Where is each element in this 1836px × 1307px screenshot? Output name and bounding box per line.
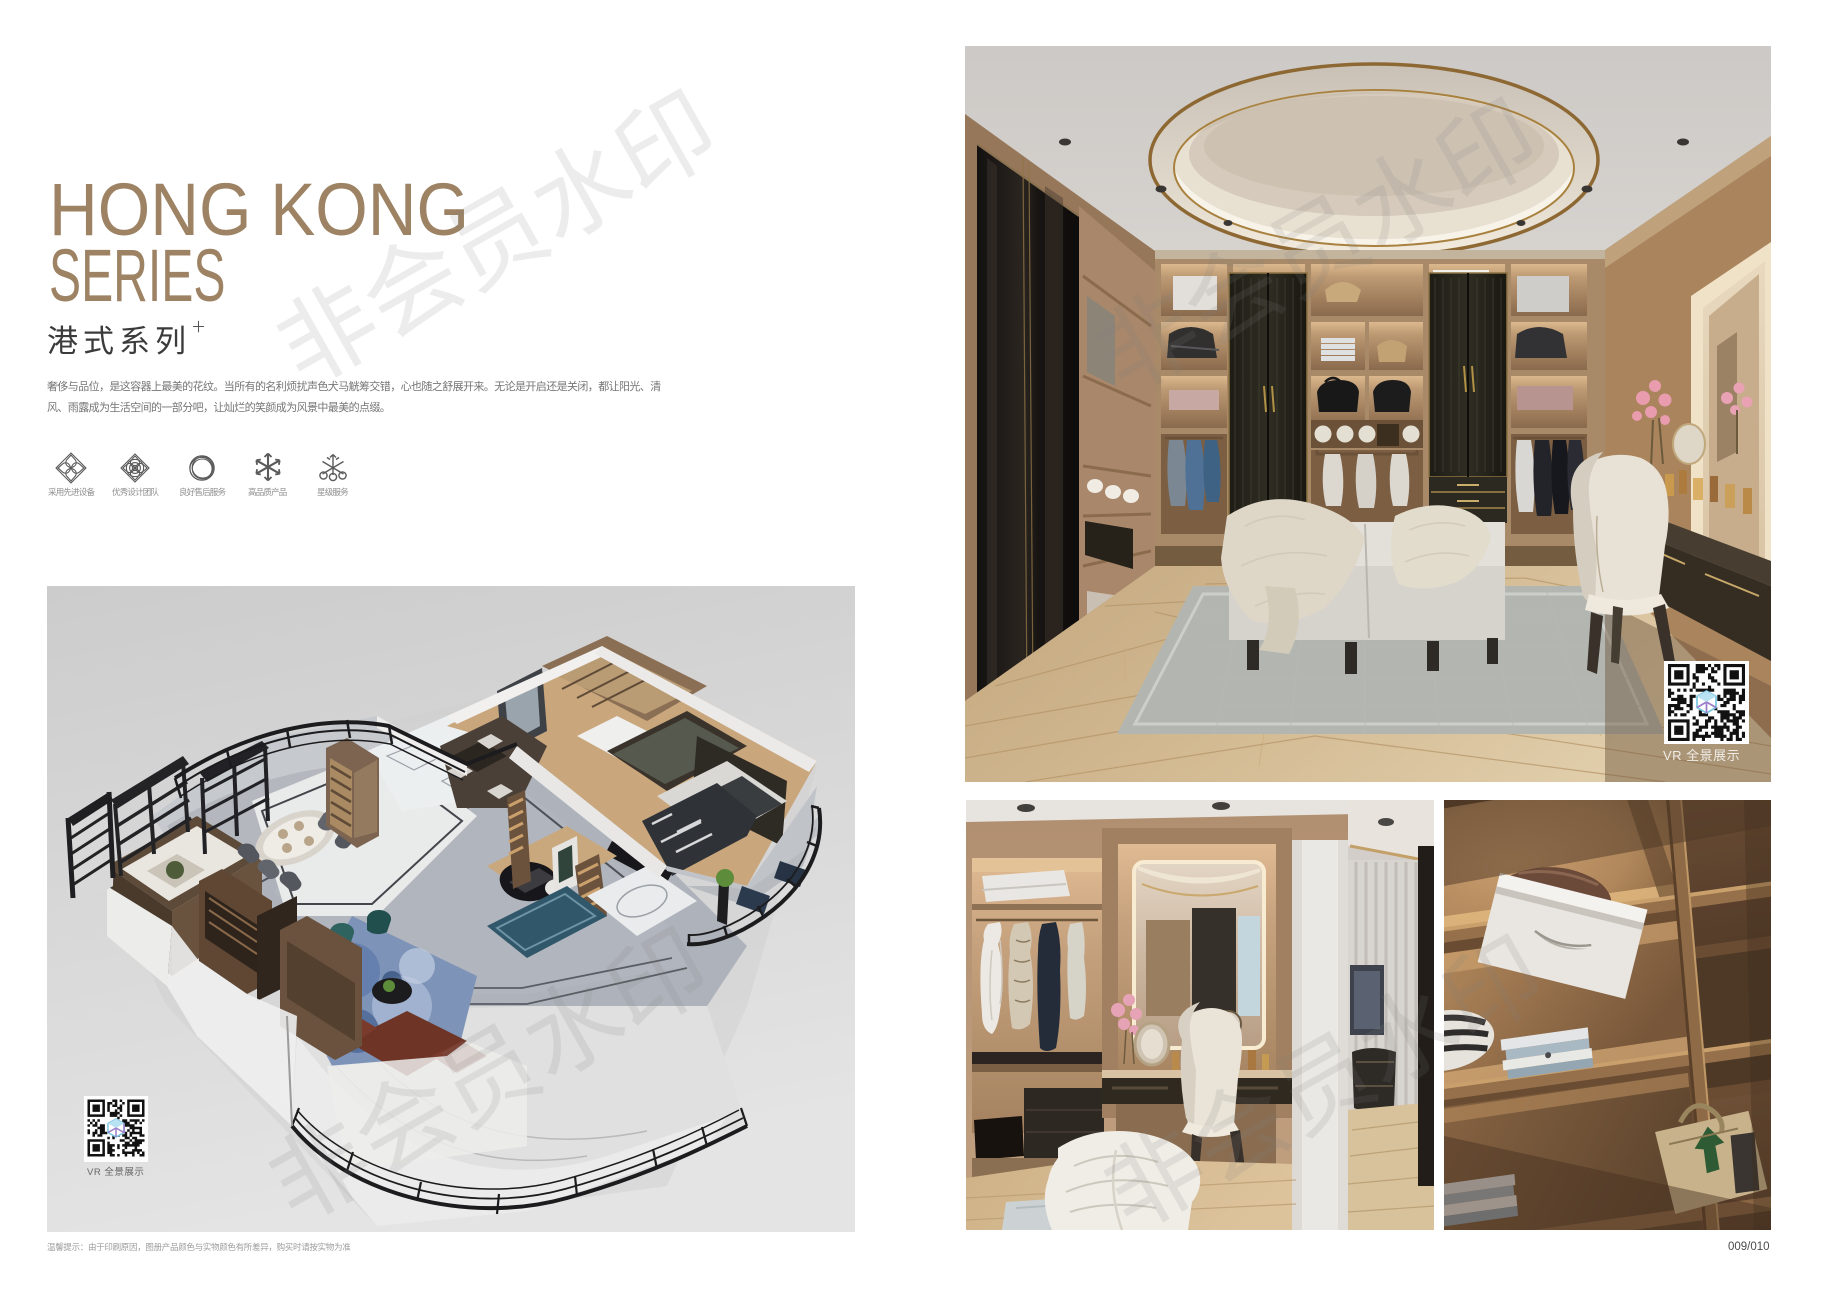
- svg-text:VR 全景展示: VR 全景展示: [87, 1166, 144, 1178]
- svg-text:VR 全景展示: VR 全景展示: [1663, 748, 1740, 763]
